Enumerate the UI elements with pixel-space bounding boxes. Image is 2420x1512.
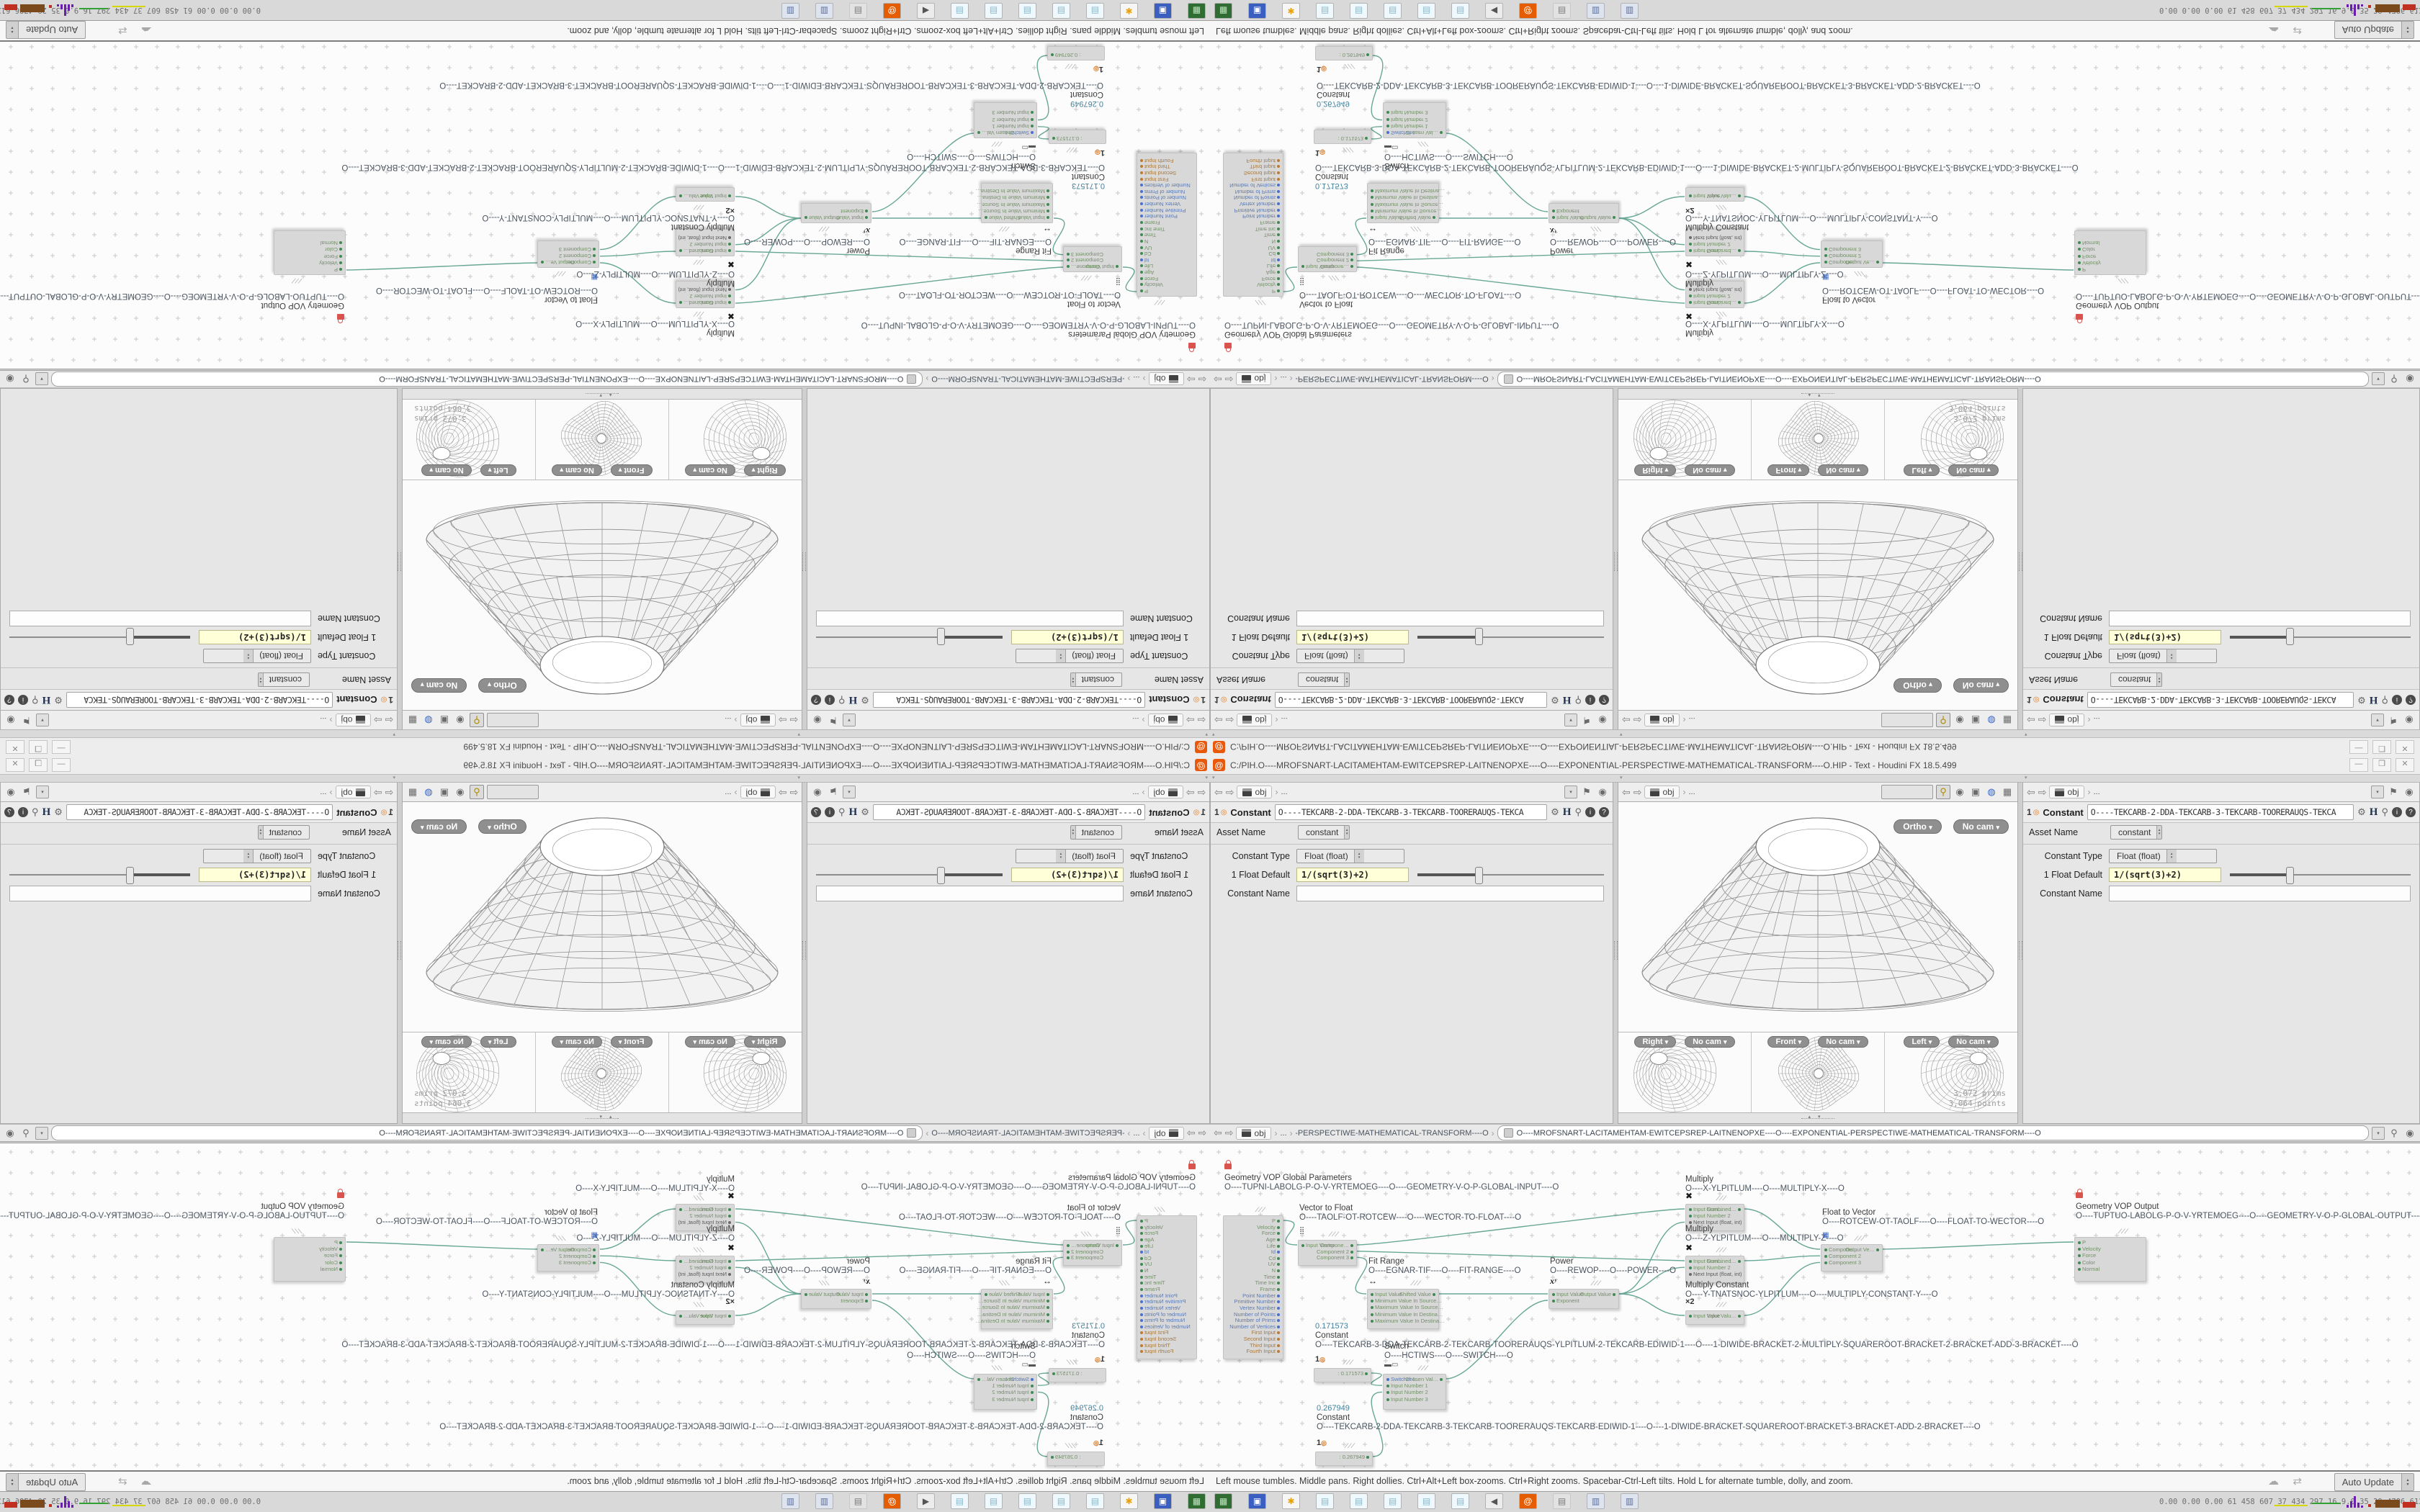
- link-target-icon[interactable]: ◉: [4, 714, 17, 726]
- input-port[interactable]: Color: [2076, 246, 2095, 252]
- sync-icon[interactable]: ⇄: [118, 1475, 127, 1488]
- input-port[interactable]: Component 3: [1823, 246, 1861, 252]
- forward-icon[interactable]: ⇨: [2038, 714, 2047, 726]
- camera-menu-pill[interactable]: No cam ▾: [411, 678, 467, 693]
- camera-menu-pill[interactable]: No cam ▾: [1953, 819, 2009, 834]
- spinner-icon[interactable]: ▴▾: [1354, 649, 1364, 662]
- breadcrumb-more[interactable]: ...: [2093, 716, 2099, 724]
- network-current-node-field[interactable]: O----MROFSNART-LACITAMEHTAM-EWITCEPSREP-…: [51, 1125, 923, 1140]
- param-combo[interactable]: constant▴▾: [2110, 825, 2162, 840]
- text-input[interactable]: [9, 886, 311, 901]
- subview-menu-pill[interactable]: Left ▾: [480, 1036, 516, 1048]
- gear-icon[interactable]: ⚙: [1551, 694, 1559, 706]
- vop-node-geo_out[interactable]: PVelocityForceColorNormal: [2074, 1237, 2146, 1282]
- expression-field[interactable]: 1/(sqrt(3)+2): [1296, 868, 1409, 882]
- forward-icon[interactable]: ⇨: [1187, 1127, 1196, 1139]
- param-combo[interactable]: Float (float)▴▾: [2109, 649, 2217, 663]
- param-combo[interactable]: constant▴▾: [1070, 825, 1122, 840]
- audio-icon[interactable]: ◀: [1485, 1493, 1503, 1509]
- input-port[interactable]: Input Value: [837, 215, 869, 220]
- input-port[interactable]: Input Value: [1369, 215, 1402, 220]
- output-port[interactable]: Shifted Value: [983, 1292, 1021, 1297]
- breadcrumb[interactable]: obj: [2049, 714, 2084, 726]
- spinner-icon[interactable]: ▴▾: [2166, 850, 2177, 863]
- forward-icon[interactable]: ⇨: [374, 714, 382, 726]
- input-port[interactable]: Input Value: [1018, 1292, 1051, 1297]
- output-port[interactable]: Second Input: [1139, 1336, 1176, 1342]
- breadcrumb-parent-node[interactable]: O----MROFSNART-LACITAMEHTAM-EWITCEPSREP-…: [1296, 1129, 1489, 1138]
- info-icon[interactable]: i: [825, 807, 835, 817]
- viewport-subview-right[interactable]: Right ▾No cam ▾: [1618, 399, 1752, 480]
- vop-node-mulz[interactable]: Input Num…Input Number 2Next Input (floa…: [1685, 1256, 1744, 1283]
- param-combo[interactable]: Float (float)▴▾: [203, 849, 311, 863]
- pane-dropdown[interactable]: ▾: [843, 786, 856, 798]
- hscript-icon[interactable]: H: [42, 694, 51, 706]
- value-slider[interactable]: [816, 629, 1003, 645]
- vop-node-geo_in[interactable]: PVelocityForceAgeLifeIdCdUVNTimeTime Inc…: [1223, 153, 1283, 297]
- hscript-icon[interactable]: H: [2370, 694, 2378, 706]
- param-combo[interactable]: Float (float)▴▾: [1296, 649, 1404, 663]
- breadcrumb-root[interactable]: obj: [1255, 787, 1266, 797]
- output-port[interactable]: P: [1272, 288, 1281, 294]
- subview-camera-pill[interactable]: No cam ▾: [1948, 464, 1998, 476]
- auto-update-button[interactable]: Auto Update ▴▾: [2334, 1473, 2414, 1491]
- input-port[interactable]: P: [2076, 266, 2086, 272]
- view-menu-pill[interactable]: Ortho ▾: [1894, 678, 1942, 693]
- sync-icon[interactable]: ⇄: [118, 24, 127, 37]
- output-port[interactable]: Frame: [1139, 1287, 1160, 1292]
- view-target-icon[interactable]: ◉: [1953, 786, 1966, 798]
- search-icon[interactable]: ⚲: [2381, 694, 2388, 706]
- output-port[interactable]: Number of Points: [1234, 194, 1281, 200]
- output-port[interactable]: Frame: [1139, 220, 1160, 225]
- subview-menu-pill[interactable]: Right ▾: [744, 1036, 786, 1048]
- info-icon[interactable]: i: [18, 695, 28, 705]
- breadcrumb-root[interactable]: obj: [1155, 1128, 1166, 1138]
- layout-grid-icon[interactable]: ▦: [406, 714, 419, 726]
- output-port[interactable]: P: [1139, 288, 1148, 294]
- script-icon[interactable]: ▥: [1587, 3, 1605, 19]
- notes-icon[interactable]: ▤: [1350, 1493, 1368, 1509]
- houdini-icon[interactable]: @: [883, 3, 901, 19]
- notes-icon[interactable]: ▤: [1018, 1493, 1036, 1509]
- output-port[interactable]: Primitive Number: [1139, 207, 1186, 213]
- breadcrumb-parent-node[interactable]: O----MROFSNART-LACITAMEHTAM-EWITCEPSREP-…: [931, 1129, 1124, 1138]
- spinner-icon[interactable]: ▴▾: [1071, 826, 1076, 839]
- view-lamp-icon[interactable]: ⚲: [1936, 785, 1950, 799]
- spark-icon[interactable]: ✱: [1282, 1493, 1300, 1509]
- notes-icon[interactable]: ▤: [1018, 3, 1036, 19]
- input-port[interactable]: Input Number 2: [1385, 1390, 1428, 1395]
- output-port[interactable]: Primitive Number: [1234, 207, 1281, 213]
- breadcrumb-root[interactable]: obj: [1154, 715, 1165, 725]
- output-port[interactable]: Component 3: [1065, 1255, 1103, 1261]
- value-slider[interactable]: [1417, 629, 1604, 645]
- param-combo[interactable]: constant▴▾: [258, 825, 310, 840]
- script-icon[interactable]: ▥: [1621, 1493, 1639, 1509]
- slider-handle[interactable]: [126, 867, 134, 884]
- output-port[interactable]: First Input: [1139, 176, 1168, 182]
- text-input[interactable]: [816, 611, 1124, 626]
- breadcrumb-more[interactable]: ...: [1281, 716, 1287, 724]
- input-port[interactable]: Minimum Value In Destina…: [977, 194, 1051, 200]
- breadcrumb-root[interactable]: obj: [341, 715, 353, 725]
- scene-icon[interactable]: ▦: [1188, 1493, 1206, 1509]
- shaded-cube-icon[interactable]: ▣: [438, 714, 451, 726]
- viewport-canvas[interactable]: Ortho ▾ No cam ▾ Right ▾No cam ▾Front ▾N…: [1618, 802, 2017, 1123]
- render-icon[interactable]: ▤: [1553, 3, 1571, 19]
- output-port[interactable]: Force: [1139, 276, 1158, 282]
- output-port[interactable]: Output Value: [1580, 1292, 1617, 1297]
- back-icon[interactable]: ⇦: [1214, 373, 1222, 385]
- auto-update-button[interactable]: Auto Update ▴▾: [2334, 21, 2414, 39]
- pane-splitter[interactable]: [802, 388, 807, 729]
- output-port[interactable]: Combined…: [1706, 1259, 1742, 1264]
- output-port[interactable]: Time: [1139, 232, 1156, 238]
- material-sphere-icon[interactable]: ◍: [1985, 714, 1998, 726]
- spinner-icon[interactable]: ▴▾: [1056, 649, 1066, 662]
- breadcrumb[interactable]: obj: [1148, 786, 1183, 798]
- output-port[interactable]: First Input: [1252, 176, 1281, 182]
- spinner-icon[interactable]: ▴▾: [1344, 826, 1349, 839]
- close-button[interactable]: ✕: [2396, 740, 2414, 754]
- pin-icon[interactable]: ⚑: [2387, 786, 2400, 798]
- output-port[interactable]: Compone…: [1320, 1243, 1355, 1248]
- output-port[interactable]: Age: [1266, 1237, 1281, 1243]
- input-port[interactable]: Component 2: [559, 253, 597, 258]
- back-icon[interactable]: ⇦: [789, 714, 798, 726]
- subview-menu-pill[interactable]: Right ▾: [744, 464, 786, 476]
- notes-icon[interactable]: ▤: [1316, 1493, 1334, 1509]
- breadcrumb-root[interactable]: obj: [2067, 715, 2079, 725]
- output-port[interactable]: Component 3: [1065, 251, 1103, 257]
- viewport-subview-front[interactable]: Front ▾No cam ▾: [535, 399, 668, 480]
- script-icon[interactable]: ▥: [1621, 3, 1639, 19]
- pin-icon[interactable]: ⚑: [20, 786, 33, 798]
- viewport-subview-right[interactable]: Right ▾No cam ▾: [668, 399, 802, 480]
- auto-update-button[interactable]: Auto Update ▴▾: [6, 21, 86, 39]
- input-port[interactable]: Input Value: [1018, 215, 1051, 220]
- spinner-icon[interactable]: ▴▾: [243, 850, 254, 863]
- input-port[interactable]: Maximum Value In Source…: [977, 1305, 1051, 1310]
- info-icon[interactable]: i: [1585, 695, 1595, 705]
- output-port[interactable]: Output Ve…: [539, 1247, 575, 1253]
- houdini-icon[interactable]: @: [1519, 1493, 1537, 1509]
- sync-icon[interactable]: ⇄: [2293, 1475, 2302, 1488]
- notes-icon[interactable]: ▤: [1451, 3, 1469, 19]
- output-port[interactable]: Point Number: [1242, 213, 1281, 219]
- slider-handle[interactable]: [937, 628, 945, 645]
- pane-menu-icon[interactable]: ▾: [2025, 731, 2027, 737]
- notes-icon[interactable]: ▤: [1350, 3, 1368, 19]
- vop-node-geo_out[interactable]: PVelocityForceColorNormal: [274, 1237, 346, 1282]
- camera-menu-pill[interactable]: No cam ▾: [1953, 678, 2009, 693]
- layout-grid-icon[interactable]: ▦: [406, 786, 419, 798]
- pane-dropdown[interactable]: ▾: [2372, 1127, 2385, 1140]
- output-port[interactable]: Component 2: [1317, 257, 1355, 263]
- expression-field[interactable]: 1/(sqrt(3)+2): [2109, 868, 2221, 882]
- output-port[interactable]: Component 3: [1317, 1255, 1355, 1261]
- input-port[interactable]: Input Number 2: [1688, 1265, 1731, 1271]
- spark-icon[interactable]: ✱: [1120, 1493, 1138, 1509]
- sync-icon[interactable]: ⇄: [2293, 24, 2302, 37]
- value-slider[interactable]: [9, 629, 190, 645]
- pane-menu-icon[interactable]: ▾: [797, 731, 800, 737]
- spinner-icon[interactable]: ▴▾: [2156, 673, 2161, 686]
- view-lamp-icon[interactable]: ⚲: [19, 373, 32, 386]
- close-button[interactable]: ✕: [6, 758, 24, 772]
- output-port[interactable]: P: [1139, 1218, 1148, 1224]
- breadcrumb[interactable]: obj: [740, 786, 776, 798]
- vop-node-const2[interactable]: : 0.267949: [1315, 46, 1373, 60]
- script-icon[interactable]: ▥: [1587, 1493, 1605, 1509]
- restore-button[interactable]: ❐: [29, 758, 48, 772]
- input-port[interactable]: Input Number 1: [992, 1383, 1035, 1389]
- back-icon[interactable]: ⇦: [385, 786, 393, 798]
- forward-icon[interactable]: ⇨: [1187, 373, 1196, 385]
- info-icon[interactable]: i: [825, 695, 835, 705]
- value-slider[interactable]: [1417, 867, 1604, 883]
- input-port[interactable]: Input Number 2: [689, 241, 732, 247]
- gear-icon[interactable]: ⚙: [54, 806, 63, 818]
- help-icon[interactable]: ?: [2406, 807, 2416, 817]
- input-port[interactable]: P: [334, 1240, 344, 1246]
- breadcrumb-more[interactable]: ...: [1132, 716, 1139, 724]
- back-icon[interactable]: ⇦: [2027, 786, 2035, 798]
- input-port[interactable]: Input Number 2: [992, 1390, 1035, 1395]
- layout-grid-icon[interactable]: ▦: [2001, 786, 2014, 798]
- output-port[interactable]: Third Input: [1250, 163, 1281, 169]
- output-port[interactable]: Chosen Val…: [976, 1377, 1015, 1382]
- houdini-icon[interactable]: @: [883, 1493, 901, 1509]
- input-port[interactable]: Normal: [2076, 240, 2099, 246]
- output-port[interactable]: Output Ve…: [1845, 259, 1881, 265]
- breadcrumb-root[interactable]: obj: [1662, 787, 1674, 797]
- network-editor[interactable]: Geometry VOP Global ParametersO----TUPNI…: [0, 1143, 1210, 1471]
- pane-dropdown[interactable]: ▾: [2372, 373, 2385, 386]
- back-icon[interactable]: ⇦: [1214, 1127, 1222, 1139]
- output-port[interactable]: Shifted Value: [1399, 1292, 1437, 1297]
- input-port[interactable]: Color: [2076, 1260, 2095, 1266]
- output-port[interactable]: Id: [1271, 257, 1281, 263]
- output-port[interactable]: Cd: [1268, 251, 1281, 256]
- gear-icon[interactable]: ⚙: [1551, 806, 1559, 818]
- breadcrumb-root[interactable]: obj: [1254, 374, 1265, 384]
- scene-icon[interactable]: ▦: [1214, 3, 1232, 19]
- spinner-icon[interactable]: ▴▾: [1071, 673, 1076, 686]
- vop-node-geo_in[interactable]: PVelocityForceAgeLifeIdCdUVNTimeTime Inc…: [1137, 153, 1197, 297]
- output-port[interactable]: Vertex Number: [1139, 201, 1180, 207]
- output-port[interactable]: Cd: [1139, 251, 1152, 256]
- render-icon[interactable]: ▤: [849, 3, 867, 19]
- vop-node-geo_out[interactable]: PVelocityForceColorNormal: [274, 230, 346, 275]
- value-slider[interactable]: [2230, 867, 2411, 883]
- breadcrumb-more[interactable]: ...: [1688, 788, 1695, 796]
- input-port[interactable]: Input Value: [1551, 1292, 1583, 1297]
- input-port[interactable]: Maximum Value In Source…: [977, 202, 1051, 207]
- output-port[interactable]: Output Value: [803, 1292, 840, 1297]
- view-target-icon[interactable]: ◉: [454, 714, 467, 726]
- shaded-cube-icon[interactable]: ▣: [1969, 714, 1982, 726]
- input-port[interactable]: Velocity: [319, 1246, 344, 1252]
- node-path-field[interactable]: O----TEKCARB-2-DDA-TEKCARB-3-TEKCARB-TOO…: [2087, 804, 2354, 820]
- output-port[interactable]: Compone…: [1065, 264, 1100, 269]
- notes-icon[interactable]: ▤: [951, 1493, 969, 1509]
- vop-node-power[interactable]: Input ValueExponentOutput Value: [801, 203, 871, 223]
- input-port[interactable]: Input Number 1: [1385, 1383, 1428, 1389]
- restore-button[interactable]: ❐: [2372, 758, 2391, 772]
- notes-icon[interactable]: ▤: [985, 3, 1003, 19]
- search-icon[interactable]: ⚲: [32, 694, 39, 706]
- input-port[interactable]: Input Number 1: [992, 123, 1035, 129]
- subview-menu-pill[interactable]: Front ▾: [611, 1036, 653, 1048]
- back-icon[interactable]: ⇦: [1622, 786, 1631, 798]
- node-path-field[interactable]: O----TEKCARB-2-DDA-TEKCARB-3-TEKCARB-TOO…: [1275, 804, 1547, 820]
- output-port[interactable]: Input Valu…: [678, 1313, 713, 1319]
- notes-icon[interactable]: ▤: [1417, 1493, 1435, 1509]
- viewport-scrollbar[interactable]: ▴▾: [403, 389, 802, 400]
- save-icon[interactable]: ▣: [1248, 3, 1266, 19]
- view-preset-combo[interactable]: [487, 785, 539, 799]
- notes-icon[interactable]: ▤: [951, 3, 969, 19]
- output-port[interactable]: Velocity: [1139, 282, 1163, 287]
- input-port[interactable]: Input Value: [837, 1292, 869, 1297]
- output-port[interactable]: Output Value: [803, 215, 840, 220]
- notes-icon[interactable]: ▤: [1316, 3, 1334, 19]
- expression-field[interactable]: 1/(sqrt(3)+2): [1296, 630, 1409, 644]
- script-icon[interactable]: ▥: [815, 3, 833, 19]
- breadcrumb-more[interactable]: ...: [320, 788, 326, 796]
- view-preset-combo[interactable]: [487, 713, 539, 727]
- network-editor[interactable]: Geometry VOP Global ParametersO----TUPNI…: [0, 41, 1210, 369]
- output-port[interactable]: Output Value: [1580, 215, 1617, 220]
- output-port[interactable]: Number of Points: [1139, 194, 1186, 200]
- pane-splitter[interactable]: [398, 388, 402, 729]
- slider-handle[interactable]: [937, 867, 945, 884]
- forward-icon[interactable]: ⇨: [1186, 786, 1195, 798]
- spinner-icon[interactable]: ▴▾: [2156, 826, 2161, 839]
- output-port[interactable]: Number of Vertices: [1229, 182, 1281, 188]
- input-port[interactable]: Input Number 2: [1688, 241, 1731, 247]
- script-icon[interactable]: ▥: [781, 3, 799, 19]
- pin-icon[interactable]: ⚑: [2387, 714, 2400, 726]
- breadcrumb-root[interactable]: obj: [746, 715, 758, 725]
- subview-camera-pill[interactable]: No cam ▾: [1818, 1036, 1868, 1048]
- view-target-icon[interactable]: ◉: [1953, 714, 1966, 726]
- scene-icon[interactable]: ▦: [1188, 3, 1206, 19]
- output-port[interactable]: Compone…: [1065, 1243, 1100, 1248]
- subview-menu-pill[interactable]: Left ▾: [1904, 1036, 1940, 1048]
- output-port[interactable]: Component 3: [1317, 251, 1355, 257]
- output-port[interactable]: Combined…: [678, 248, 714, 253]
- network-editor[interactable]: Geometry VOP Global ParametersO----TUPNI…: [1210, 41, 2420, 369]
- material-sphere-icon[interactable]: ◍: [1985, 786, 1998, 798]
- breadcrumb-parent-node[interactable]: O----MROFSNART-LACITAMEHTAM-EWITCEPSREP-…: [1296, 375, 1489, 384]
- output-port[interactable]: : 0.267949: [1340, 52, 1371, 58]
- pane-menu-icon[interactable]: ▾: [1205, 731, 1208, 737]
- pane-menu-icon[interactable]: ▾: [1212, 731, 1215, 737]
- breadcrumb-more[interactable]: ...: [725, 788, 731, 796]
- output-port[interactable]: Combined…: [678, 1207, 714, 1212]
- input-port[interactable]: Input Number 2: [1385, 117, 1428, 122]
- value-slider[interactable]: [816, 867, 1003, 883]
- output-port[interactable]: Frame: [1260, 1287, 1281, 1292]
- breadcrumb-root[interactable]: obj: [1255, 715, 1266, 725]
- output-port[interactable]: Age: [1139, 269, 1154, 275]
- breadcrumb-root[interactable]: obj: [1662, 715, 1674, 725]
- slider-handle[interactable]: [2286, 867, 2294, 884]
- output-port[interactable]: Life: [1139, 263, 1153, 269]
- spinner-icon[interactable]: ▴▾: [243, 649, 254, 662]
- search-icon[interactable]: ⚲: [1574, 806, 1582, 818]
- input-port[interactable]: Exponent: [841, 208, 869, 214]
- input-port[interactable]: Component 2: [559, 1254, 597, 1259]
- pane-dropdown[interactable]: ▾: [36, 714, 49, 726]
- gear-icon[interactable]: ⚙: [861, 806, 869, 818]
- notes-icon[interactable]: ▤: [1384, 3, 1402, 19]
- back-icon[interactable]: ⇦: [1198, 1127, 1206, 1139]
- slider-handle[interactable]: [2286, 628, 2294, 645]
- search-icon[interactable]: ⚲: [1574, 694, 1582, 706]
- breadcrumb-more[interactable]: ...: [1132, 788, 1139, 796]
- hscript-icon[interactable]: H: [2370, 806, 2378, 819]
- subview-camera-pill[interactable]: No cam ▾: [421, 464, 471, 476]
- minimize-button[interactable]: —: [52, 740, 71, 754]
- node-path-field[interactable]: O----TEKCARB-2-DDA-TEKCARB-3-TEKCARB-TOO…: [2087, 692, 2354, 708]
- output-port[interactable]: Compone…: [1320, 264, 1355, 269]
- input-port[interactable]: Exponent: [841, 1298, 869, 1304]
- view-menu-pill[interactable]: Ortho ▾: [1894, 819, 1942, 834]
- forward-icon[interactable]: ⇨: [2038, 786, 2047, 798]
- breadcrumb-more[interactable]: ...: [725, 716, 731, 724]
- help-icon[interactable]: ?: [811, 807, 821, 817]
- output-port[interactable]: Chosen Val…: [1405, 130, 1444, 135]
- forward-icon[interactable]: ⇨: [779, 786, 787, 798]
- pin-icon[interactable]: ⚑: [827, 714, 840, 726]
- hscript-icon[interactable]: H: [42, 806, 51, 819]
- input-port[interactable]: Input Number 2: [992, 117, 1035, 122]
- input-port[interactable]: Input Number 3: [992, 1397, 1035, 1403]
- vop-node-mulz[interactable]: Input Num…Input Number 2Next Input (floa…: [676, 229, 735, 256]
- breadcrumb[interactable]: obj: [336, 714, 371, 726]
- breadcrumb[interactable]: obj: [1148, 714, 1183, 726]
- back-icon[interactable]: ⇦: [385, 714, 393, 726]
- help-icon[interactable]: ?: [4, 695, 14, 705]
- pane-menu-icon[interactable]: ▾: [1620, 731, 1623, 737]
- output-port[interactable]: : 0.171573: [1338, 135, 1369, 141]
- output-port[interactable]: Combined…: [1706, 1207, 1742, 1212]
- output-port[interactable]: Shifted Value: [1399, 215, 1437, 220]
- vop-node-power[interactable]: Input ValueExponentOutput Value: [1549, 1289, 1619, 1309]
- output-port[interactable]: Fourth Input: [1247, 158, 1281, 163]
- save-icon[interactable]: ▣: [1154, 1493, 1172, 1509]
- input-port[interactable]: Normal: [321, 1266, 344, 1272]
- output-port[interactable]: Life: [1267, 263, 1281, 269]
- breadcrumb[interactable]: obj: [2049, 786, 2084, 798]
- vop-node-const1[interactable]: : 0.171573: [1049, 130, 1106, 144]
- gear-icon[interactable]: ⚙: [861, 694, 869, 706]
- input-port[interactable]: Input Number 1: [1385, 123, 1428, 129]
- breadcrumb-more[interactable]: ...: [1133, 375, 1139, 384]
- restore-button[interactable]: ❐: [2372, 740, 2391, 754]
- breadcrumb[interactable]: obj: [1644, 786, 1680, 798]
- subview-camera-pill[interactable]: No cam ▾: [421, 1036, 471, 1048]
- vop-node-power[interactable]: Input ValueExponentOutput Value: [801, 1289, 871, 1309]
- output-port[interactable]: : 0.171573: [1338, 1371, 1369, 1377]
- output-port[interactable]: Combined…: [678, 300, 714, 305]
- forward-icon[interactable]: ⇨: [1186, 714, 1195, 726]
- vop-node-flt2vec[interactable]: Compone…Component 2Component 3Output Ve…: [537, 240, 599, 268]
